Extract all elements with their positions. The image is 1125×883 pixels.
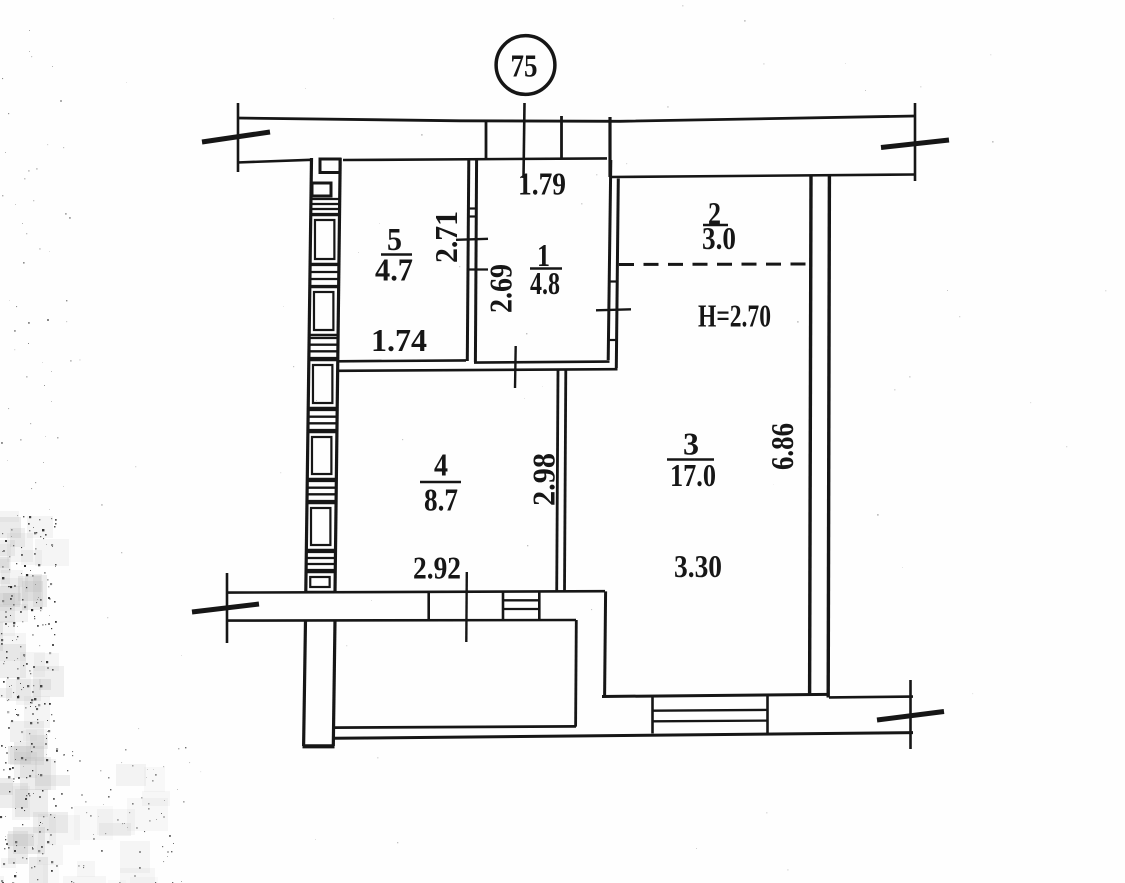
svg-text:8.7: 8.7 xyxy=(424,482,458,517)
svg-text:6.86: 6.86 xyxy=(765,423,800,470)
svg-text:2.98: 2.98 xyxy=(526,453,561,506)
svg-text:2.69: 2.69 xyxy=(483,264,518,313)
svg-text:3.0: 3.0 xyxy=(702,221,736,256)
svg-text:17.0: 17.0 xyxy=(670,458,716,493)
svg-text:3.30: 3.30 xyxy=(674,549,722,584)
svg-text:2.92: 2.92 xyxy=(413,550,461,585)
svg-text:3: 3 xyxy=(683,426,699,461)
svg-text:1.74: 1.74 xyxy=(371,323,427,358)
svg-text:H=2.70: H=2.70 xyxy=(698,298,771,333)
svg-text:4.7: 4.7 xyxy=(375,252,413,287)
svg-text:75: 75 xyxy=(511,47,538,83)
svg-text:4.8: 4.8 xyxy=(530,266,560,301)
svg-text:1.79: 1.79 xyxy=(518,166,566,201)
svg-text:4: 4 xyxy=(434,447,448,482)
svg-text:2.71: 2.71 xyxy=(429,211,464,263)
